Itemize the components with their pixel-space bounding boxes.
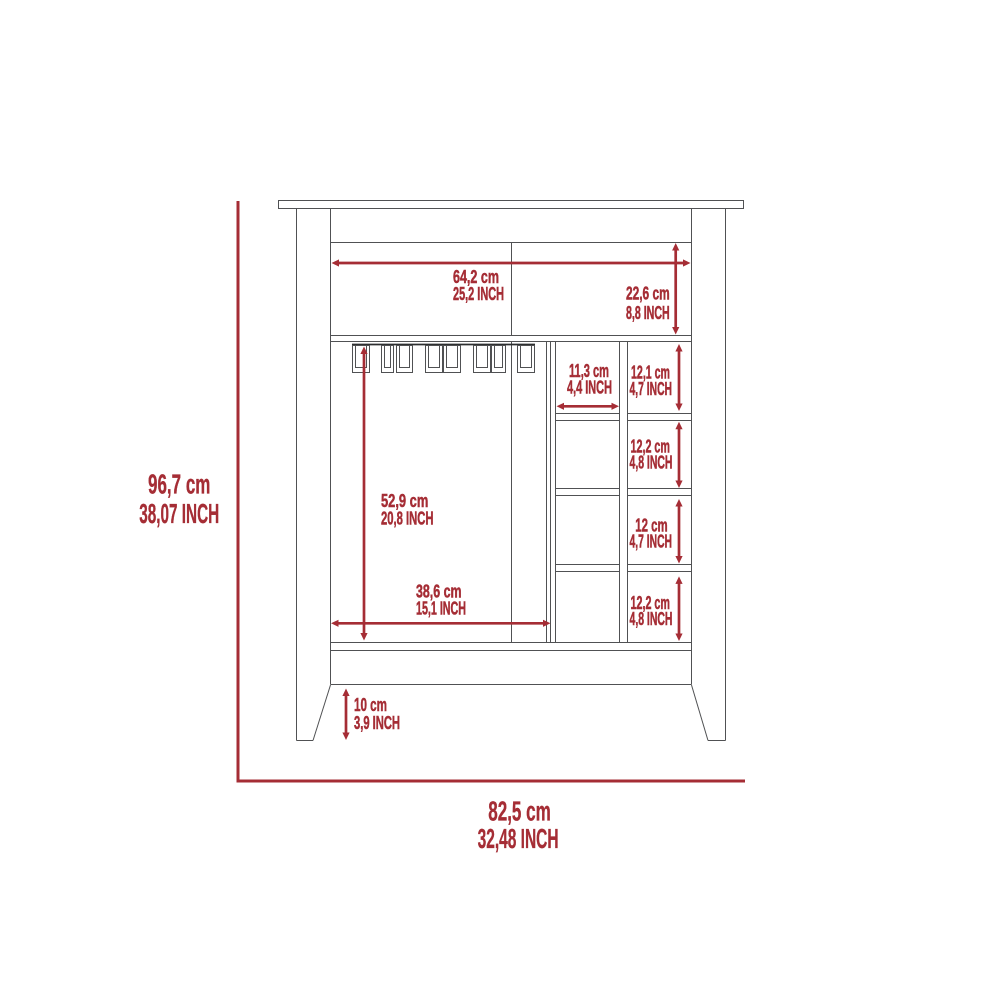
svg-text:4,7 INCH: 4,7 INCH [630, 380, 673, 400]
svg-text:4,7 INCH: 4,7 INCH [630, 533, 673, 553]
svg-text:4,8 INCH: 4,8 INCH [630, 454, 673, 474]
svg-text:4,8 INCH: 4,8 INCH [630, 610, 673, 630]
svg-text:15,1 INCH: 15,1 INCH [416, 599, 466, 620]
svg-text:38,07 INCH: 38,07 INCH [139, 498, 219, 529]
svg-text:96,7 cm: 96,7 cm [148, 468, 210, 499]
svg-text:25,2 INCH: 25,2 INCH [453, 284, 504, 305]
svg-text:32,48 INCH: 32,48 INCH [478, 823, 559, 854]
svg-text:82,5 cm: 82,5 cm [488, 795, 551, 826]
svg-text:22,6 cm: 22,6 cm [626, 284, 670, 304]
svg-text:4,4 INCH: 4,4 INCH [567, 378, 612, 399]
svg-text:8,8 INCH: 8,8 INCH [626, 304, 670, 324]
svg-text:3,9 INCH: 3,9 INCH [354, 713, 400, 733]
svg-text:20,8 INCH: 20,8 INCH [381, 509, 434, 529]
